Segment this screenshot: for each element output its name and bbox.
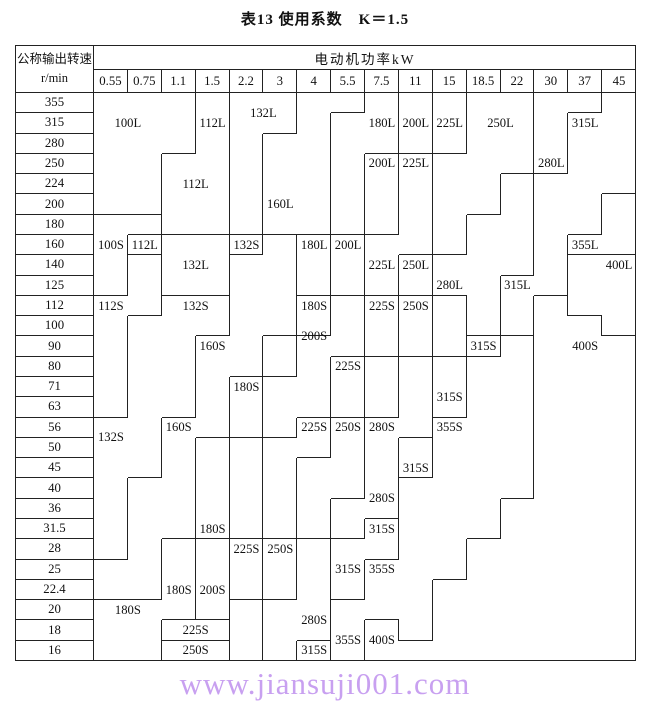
- speed-cell: 20: [16, 600, 94, 620]
- grid-cell: [433, 397, 467, 417]
- grid-cell: [399, 357, 433, 377]
- grid-cell: [128, 93, 162, 113]
- grid-cell: [501, 194, 535, 214]
- grid-cell: [467, 397, 501, 417]
- grid-cell: [534, 377, 568, 397]
- grid-cell: [162, 316, 196, 336]
- grid-cell: [568, 154, 602, 174]
- grid-cell: [534, 235, 568, 255]
- grid-cell: [501, 215, 535, 235]
- page: { "title": "表13 使用系数 K＝1.5", "header": {…: [0, 0, 650, 713]
- grid-cell: [365, 620, 399, 640]
- grid-cell: [230, 641, 264, 661]
- grid-cell: [196, 560, 230, 580]
- grid-cell: [297, 580, 331, 600]
- grid-cell: [433, 255, 467, 275]
- grid-cell: [128, 255, 162, 275]
- grid-cell: [128, 560, 162, 580]
- grid-cell: [602, 296, 636, 316]
- grid-cell: [128, 600, 162, 620]
- grid-cell: [365, 316, 399, 336]
- grid-cell: [433, 134, 467, 154]
- grid-cell: [602, 519, 636, 539]
- grid-cell: [602, 93, 636, 113]
- grid-cell: [263, 499, 297, 519]
- watermark-url: www.jiansuji001.com: [0, 666, 650, 702]
- grid-cell: [230, 580, 264, 600]
- grid-cell: [534, 397, 568, 417]
- grid-cell: [433, 519, 467, 539]
- grid-cell: [230, 194, 264, 214]
- grid-cell: [196, 600, 230, 620]
- grid-cell: [602, 276, 636, 296]
- grid-cell: [399, 255, 433, 275]
- speed-cell: 18: [16, 620, 94, 640]
- grid-cell: [128, 194, 162, 214]
- grid-cell: [602, 377, 636, 397]
- grid-cell: [263, 620, 297, 640]
- grid-cell: [501, 539, 535, 559]
- grid-cell: [568, 194, 602, 214]
- power-cell: 1.1: [162, 70, 196, 93]
- grid-cell: [467, 296, 501, 316]
- grid-cell: [196, 134, 230, 154]
- grid-cell: [534, 620, 568, 640]
- grid-cell: [196, 397, 230, 417]
- grid-cell: [297, 357, 331, 377]
- grid-cell: [467, 539, 501, 559]
- grid-cell: [196, 458, 230, 478]
- grid-cell: [467, 377, 501, 397]
- grid-cell: [568, 641, 602, 661]
- grid-cell: [534, 357, 568, 377]
- grid-cell: [365, 418, 399, 438]
- grid-cell: [602, 539, 636, 559]
- grid-cell: [196, 215, 230, 235]
- grid-cell: [331, 539, 365, 559]
- speed-header-unit: r/min: [41, 69, 68, 88]
- grid-cell: [196, 93, 230, 113]
- speed-header-label: 公称输出转速: [17, 50, 92, 69]
- grid-cell: [331, 499, 365, 519]
- grid-cell: [196, 113, 230, 133]
- grid-cell: [467, 418, 501, 438]
- grid-cell: [568, 580, 602, 600]
- grid-cell: [230, 255, 264, 275]
- grid-cell: [501, 580, 535, 600]
- grid-cell: [501, 357, 535, 377]
- grid-cell: [568, 397, 602, 417]
- grid-cell: [196, 336, 230, 356]
- grid-cell: [467, 174, 501, 194]
- grid-cell: [467, 600, 501, 620]
- power-cell: 0.55: [94, 70, 128, 93]
- grid-cell: [534, 560, 568, 580]
- grid-cell: [94, 357, 128, 377]
- grid-cell: [602, 357, 636, 377]
- grid-cell: [297, 397, 331, 417]
- grid-cell: [94, 458, 128, 478]
- grid-cell: [331, 519, 365, 539]
- grid-cell: [433, 154, 467, 174]
- grid-cell: [467, 458, 501, 478]
- grid-cell: [230, 397, 264, 417]
- grid-cell: [331, 93, 365, 113]
- grid-cell: [94, 560, 128, 580]
- grid-cell: [196, 580, 230, 600]
- grid-cell: [128, 519, 162, 539]
- grid-cell: [297, 377, 331, 397]
- grid-cell: [297, 215, 331, 235]
- grid-cell: [230, 560, 264, 580]
- grid-cell: [399, 438, 433, 458]
- grid-cell: [534, 600, 568, 620]
- grid-cell: [433, 377, 467, 397]
- grid-cell: [501, 418, 535, 438]
- grid-cell: [230, 539, 264, 559]
- grid-cell: [467, 93, 501, 113]
- grid-cell: [263, 397, 297, 417]
- grid-cell: [263, 194, 297, 214]
- grid-cell: [230, 357, 264, 377]
- grid-cell: [196, 499, 230, 519]
- grid-cell: [230, 519, 264, 539]
- grid-cell: [399, 134, 433, 154]
- grid-cell: [467, 215, 501, 235]
- grid-cell: [162, 397, 196, 417]
- grid-cell: [467, 255, 501, 275]
- grid-cell: [128, 134, 162, 154]
- grid-cell: [568, 499, 602, 519]
- grid-cell: [196, 174, 230, 194]
- speed-cell: 71: [16, 377, 94, 397]
- grid-cell: [94, 235, 128, 255]
- grid-cell: [433, 215, 467, 235]
- grid-cell: [501, 336, 535, 356]
- grid-cell: [433, 580, 467, 600]
- grid-cell: [263, 93, 297, 113]
- grid-cell: [365, 93, 399, 113]
- grid-cell: [297, 458, 331, 478]
- grid-cell: [501, 235, 535, 255]
- grid-cell: [534, 641, 568, 661]
- grid-cell: [568, 336, 602, 356]
- grid-cell: [568, 235, 602, 255]
- grid-cell: [433, 316, 467, 336]
- grid-cell: [162, 499, 196, 519]
- grid-cell: [94, 215, 128, 235]
- speed-cell: 200: [16, 194, 94, 214]
- grid-cell: [94, 478, 128, 498]
- grid-cell: [263, 316, 297, 336]
- grid-cell: [331, 255, 365, 275]
- grid-cell: [230, 499, 264, 519]
- grid-cell: [399, 336, 433, 356]
- grid-cell: [94, 93, 128, 113]
- grid-cell: [128, 174, 162, 194]
- grid-cell: [331, 580, 365, 600]
- grid-cell: [365, 194, 399, 214]
- grid-cell: [263, 296, 297, 316]
- grid-cell: [331, 600, 365, 620]
- grid-cell: [501, 641, 535, 661]
- power-header-label: 电动机功率kW: [315, 48, 416, 68]
- grid-cell: [568, 519, 602, 539]
- grid-cell: [162, 154, 196, 174]
- grid-cell: [534, 519, 568, 539]
- grid-cell: [365, 458, 399, 478]
- grid-cell: [263, 134, 297, 154]
- grid-cell: [128, 641, 162, 661]
- grid-cell: [331, 641, 365, 661]
- grid-cell: [365, 560, 399, 580]
- grid-cell: [568, 478, 602, 498]
- grid-cell: [162, 580, 196, 600]
- grid-cell: [230, 174, 264, 194]
- grid-cell: [568, 357, 602, 377]
- grid-cell: [399, 539, 433, 559]
- grid-cell: [331, 215, 365, 235]
- grid-cell: [230, 600, 264, 620]
- grid-cell: [162, 478, 196, 498]
- grid-cell: [399, 235, 433, 255]
- grid-cell: [433, 336, 467, 356]
- grid-cell: [331, 316, 365, 336]
- grid-cell: [365, 600, 399, 620]
- grid-cell: [568, 560, 602, 580]
- grid-cell: [467, 499, 501, 519]
- grid-cell: [534, 336, 568, 356]
- grid-cell: [399, 154, 433, 174]
- grid-cell: [433, 600, 467, 620]
- power-cell: 22: [501, 70, 535, 93]
- grid-cell: [94, 377, 128, 397]
- power-cell: 0.75: [128, 70, 162, 93]
- grid-cell: [297, 519, 331, 539]
- speed-cell: 56: [16, 418, 94, 438]
- grid-cell: [365, 235, 399, 255]
- grid-cell: [534, 113, 568, 133]
- grid-cell: [602, 641, 636, 661]
- grid-cell: [568, 438, 602, 458]
- grid-cell: [162, 174, 196, 194]
- grid-cell: [331, 336, 365, 356]
- grid-cell: [128, 620, 162, 640]
- grid-cell: [263, 438, 297, 458]
- grid-cell: [128, 458, 162, 478]
- grid-cell: [297, 418, 331, 438]
- speed-cell: 355: [16, 93, 94, 113]
- grid-cell: [331, 113, 365, 133]
- grid-cell: [602, 316, 636, 336]
- grid-cell: [230, 215, 264, 235]
- grid-cell: [94, 539, 128, 559]
- grid-cell: [365, 174, 399, 194]
- grid-cell: [297, 174, 331, 194]
- grid-cell: [399, 641, 433, 661]
- power-cell: 11: [399, 70, 433, 93]
- grid-cell: [297, 499, 331, 519]
- grid-cell: [501, 255, 535, 275]
- speed-cell: 25: [16, 560, 94, 580]
- grid-cell: [230, 336, 264, 356]
- grid-cell: [263, 215, 297, 235]
- grid-cell: [467, 478, 501, 498]
- grid-cell: [162, 255, 196, 275]
- grid-cell: [128, 478, 162, 498]
- grid-cell: [568, 296, 602, 316]
- grid-cell: [467, 438, 501, 458]
- grid-cell: [568, 134, 602, 154]
- grid-cell: [568, 418, 602, 438]
- grid-cell: [94, 620, 128, 640]
- grid-cell: [501, 458, 535, 478]
- grid-cell: [467, 357, 501, 377]
- power-cell: 4: [297, 70, 331, 93]
- grid-cell: [467, 316, 501, 336]
- grid-cell: [297, 600, 331, 620]
- grid-cell: [365, 276, 399, 296]
- grid-cell: [501, 560, 535, 580]
- grid-cell: [162, 134, 196, 154]
- grid-cell: [467, 276, 501, 296]
- grid-cell: [230, 296, 264, 316]
- grid-cell: [534, 215, 568, 235]
- grid-cell: [602, 397, 636, 417]
- grid-cell: [399, 600, 433, 620]
- grid-cell: [297, 235, 331, 255]
- grid-cell: [94, 154, 128, 174]
- grid-cell: [467, 580, 501, 600]
- grid-cell: [297, 93, 331, 113]
- grid-cell: [196, 154, 230, 174]
- grid-cell: [94, 438, 128, 458]
- grid-cell: [501, 154, 535, 174]
- grid-cell: [399, 478, 433, 498]
- grid-cell: [128, 418, 162, 438]
- grid-cell: [162, 276, 196, 296]
- grid-cell: [467, 560, 501, 580]
- grid-cell: [365, 357, 399, 377]
- grid-cell: [162, 336, 196, 356]
- grid-cell: [399, 174, 433, 194]
- grid-cell: [94, 499, 128, 519]
- grid-cell: [399, 519, 433, 539]
- grid-cell: [365, 255, 399, 275]
- grid-cell: [602, 620, 636, 640]
- grid-cell: [94, 174, 128, 194]
- grid-cell: [263, 478, 297, 498]
- grid-cell: [128, 580, 162, 600]
- grid-cell: [230, 377, 264, 397]
- grid-cell: [94, 296, 128, 316]
- grid-cell: [331, 134, 365, 154]
- table-title: 表13 使用系数 K＝1.5: [0, 8, 650, 29]
- speed-cell: 90: [16, 336, 94, 356]
- grid-cell: [331, 296, 365, 316]
- grid-cell: [602, 113, 636, 133]
- grid-cell: [433, 357, 467, 377]
- grid-cell: [365, 377, 399, 397]
- speed-cell: 280: [16, 134, 94, 154]
- power-cell: 2.2: [230, 70, 264, 93]
- speed-cell: 125: [16, 276, 94, 296]
- grid-cell: [263, 600, 297, 620]
- grid-cell: [331, 458, 365, 478]
- grid-cell: [297, 316, 331, 336]
- grid-cell: [433, 174, 467, 194]
- grid-cell: [230, 276, 264, 296]
- grid-cell: [297, 641, 331, 661]
- grid-cell: [365, 539, 399, 559]
- power-cell: 45: [602, 70, 636, 93]
- grid-cell: [196, 235, 230, 255]
- grid-cell: [568, 276, 602, 296]
- grid-cell: [568, 316, 602, 336]
- grid-cell: [263, 276, 297, 296]
- grid-cell: [534, 93, 568, 113]
- grid-cell: [602, 560, 636, 580]
- grid-cell: [501, 478, 535, 498]
- grid-cell: [162, 357, 196, 377]
- grid-cell: [568, 174, 602, 194]
- speed-cell: 250: [16, 154, 94, 174]
- grid-cell: [534, 194, 568, 214]
- grid-cell: [94, 600, 128, 620]
- speed-cell: 36: [16, 499, 94, 519]
- grid-cell: [297, 539, 331, 559]
- grid-cell: [263, 641, 297, 661]
- grid-cell: [467, 194, 501, 214]
- grid-cell: [501, 316, 535, 336]
- grid-cell: [94, 194, 128, 214]
- grid-cell: [433, 641, 467, 661]
- speed-cell: 224: [16, 174, 94, 194]
- grid-cell: [433, 194, 467, 214]
- grid-cell: [568, 539, 602, 559]
- grid-cell: [196, 418, 230, 438]
- grid-cell: [501, 134, 535, 154]
- grid-cell: [534, 499, 568, 519]
- grid-cell: [128, 215, 162, 235]
- speed-cell: 140: [16, 255, 94, 275]
- grid-cell: [297, 296, 331, 316]
- grid-cell: [196, 316, 230, 336]
- grid-cell: [501, 113, 535, 133]
- grid-cell: [602, 336, 636, 356]
- grid-cell: [128, 113, 162, 133]
- grid-cell: [365, 519, 399, 539]
- grid-cell: [263, 458, 297, 478]
- grid-cell: [602, 418, 636, 438]
- selection-table: 公称输出转速 r/min 电动机功率kW 0.550.751.11.52.234…: [15, 45, 636, 661]
- grid-cell: [162, 296, 196, 316]
- grid-cell: [196, 296, 230, 316]
- power-cell: 37: [568, 70, 602, 93]
- power-cell: 1.5: [196, 70, 230, 93]
- grid-cell: [297, 438, 331, 458]
- grid-cell: [196, 255, 230, 275]
- grid-cell: [230, 235, 264, 255]
- grid-cell: [433, 235, 467, 255]
- grid-cell: [433, 499, 467, 519]
- grid-cell: [433, 113, 467, 133]
- grid-cell: [297, 255, 331, 275]
- grid-cell: [162, 194, 196, 214]
- grid-cell: [399, 316, 433, 336]
- grid-cell: [433, 539, 467, 559]
- grid-cell: [196, 478, 230, 498]
